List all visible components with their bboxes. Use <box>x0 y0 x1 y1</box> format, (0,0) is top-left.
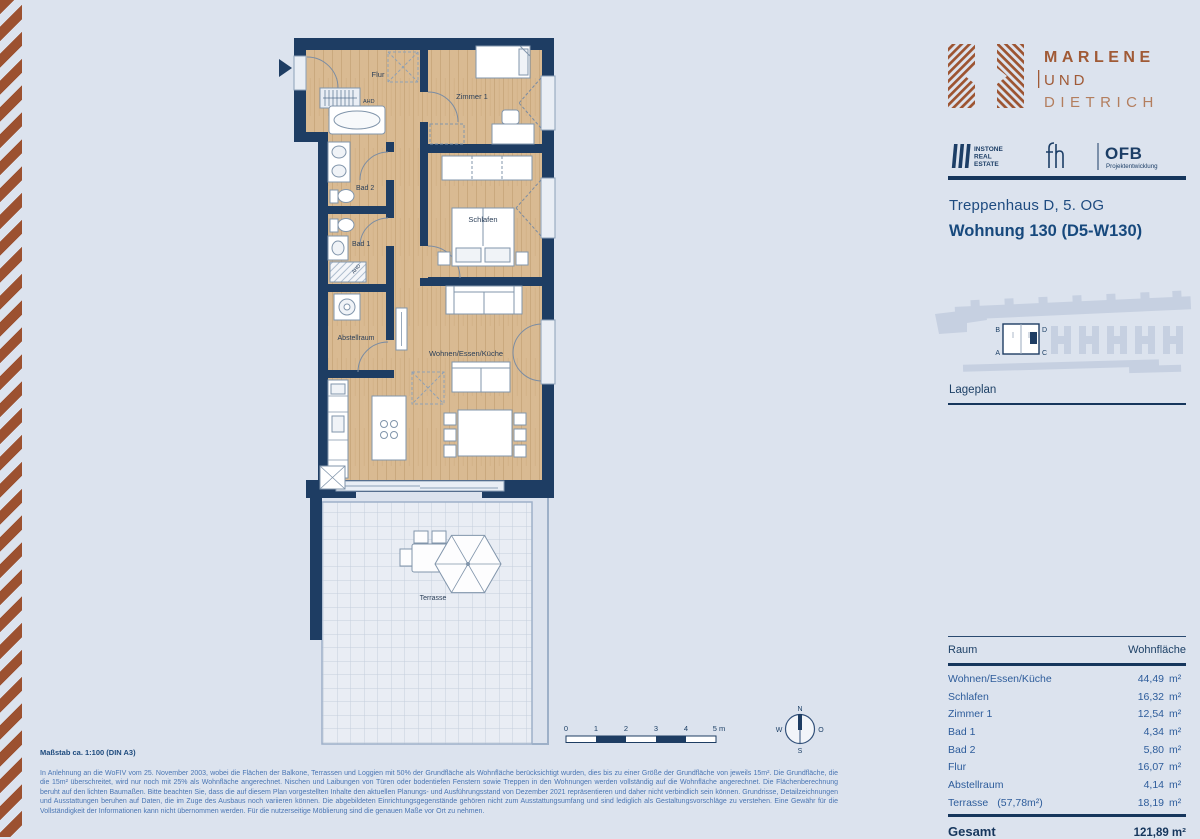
row-area-value: 4,34 <box>1144 726 1164 738</box>
ofb-subtitle: Projektentwicklung <box>1106 163 1158 170</box>
area-table: Raum Wohnfläche Wohnen/Essen/Küche 44,49… <box>948 636 1186 839</box>
row-room-name: Wohnen/Essen/Küche <box>948 673 1052 685</box>
fh-monogram-icon <box>1046 143 1063 168</box>
current-unit-highlight <box>1030 332 1037 344</box>
floor-plan-drawing: Terrasse <box>268 28 570 755</box>
row-area-value: 44,49 <box>1138 673 1164 685</box>
marlene-dietrich-logo: MARLENE UND DIETRICH <box>948 40 1192 114</box>
table-row: Bad 2 5,80 m² <box>948 741 1186 759</box>
site-plan-unit-marker: B D A C <box>995 324 1047 357</box>
column-room: Raum <box>948 644 977 656</box>
terrace-railing <box>532 494 548 744</box>
row-room-name: Zimmer 1 <box>948 708 992 720</box>
construction-stripe-band <box>0 0 22 837</box>
chair <box>514 413 526 425</box>
room-label-schlafen: Schlafen <box>468 215 497 224</box>
row-room-note: (57,78m²) <box>997 797 1043 809</box>
room-label-wohnen: Wohnen/Essen/Küche <box>429 349 503 358</box>
ahd-label: AHD <box>363 99 375 105</box>
table-row: Bad 1 4,34 m² <box>948 723 1186 741</box>
chair <box>502 110 519 124</box>
siteplan-label-b: B <box>995 327 1000 334</box>
staircase-title: Treppenhaus D, 5. OG <box>949 197 1104 214</box>
table-row: Abstellraum 4,14 m² <box>948 776 1186 794</box>
row-area-value: 16,32 <box>1138 691 1164 703</box>
desk <box>492 124 534 144</box>
row-area-value: 4,14 <box>1144 779 1164 791</box>
row-area-value: 18,19 <box>1138 797 1164 809</box>
ofb-logo: OFB Projektentwicklung <box>1105 144 1158 170</box>
instone-logo: INSTONE REAL ESTATE <box>952 144 1004 168</box>
room-label-zimmer1: Zimmer 1 <box>456 92 488 101</box>
table-row: Schlafen 16,32 m² <box>948 688 1186 706</box>
shower <box>330 262 366 282</box>
scale-tick: 5 m <box>713 724 726 733</box>
chair <box>514 429 526 441</box>
scale-tick: 0 <box>564 724 568 733</box>
table-row: Terrasse (57,78m²) 18,19 m² <box>948 794 1186 812</box>
siteplan-label-d: D <box>1042 327 1047 334</box>
logo-mark-left <box>948 44 975 108</box>
chair <box>514 445 526 457</box>
scale-bar: 0 1 2 3 4 5 m <box>564 724 725 743</box>
compass-n: N <box>797 706 802 713</box>
table-row: Flur 16,07 m² <box>948 758 1186 776</box>
entrance-arrow-icon <box>279 59 292 77</box>
toilet <box>330 190 338 203</box>
scale-note: Maßstab ca. 1:100 (DIN A3) <box>40 748 136 757</box>
row-area-unit: m² <box>1164 797 1186 809</box>
wordmark-line3: DIETRICH <box>1044 94 1159 111</box>
row-room-name: Abstellraum <box>948 779 1003 791</box>
instone-line3: ESTATE <box>974 161 999 168</box>
total-label: Gesamt <box>948 824 996 839</box>
siteplan-rule <box>948 403 1186 405</box>
site-plan-buildings <box>935 290 1191 378</box>
compass-w: W <box>776 727 783 734</box>
table-header: Raum Wohnfläche <box>948 639 1186 663</box>
header-rule <box>948 176 1186 180</box>
scale-tick: 3 <box>654 724 658 733</box>
compass-icon: N W O S <box>776 706 825 755</box>
row-area-unit: m² <box>1164 691 1186 703</box>
siteplan-caption: Lageplan <box>949 384 996 396</box>
chair <box>444 413 456 425</box>
instone-line2: REAL <box>974 154 992 161</box>
room-label-flur: Flur <box>372 70 385 79</box>
row-area-value: 5,80 <box>1144 744 1164 756</box>
row-room-name: Bad 2 <box>948 744 975 756</box>
compass-o: O <box>818 727 824 734</box>
nightstand <box>438 252 450 265</box>
scale-tick: 4 <box>684 724 688 733</box>
row-area-unit: m² <box>1164 744 1186 756</box>
siteplan-label-c: C <box>1042 350 1047 357</box>
toilet <box>330 219 338 232</box>
room-label-bad2: Bad 2 <box>356 185 374 192</box>
site-plan: B D A C <box>933 280 1197 382</box>
nightstand <box>516 252 528 265</box>
logo-mark-right <box>997 44 1024 108</box>
terrace: Terrasse <box>306 492 554 744</box>
wordmark-line1: MARLENE <box>1044 49 1155 66</box>
row-room-name: Flur <box>948 761 966 773</box>
scale-tick: 2 <box>624 724 628 733</box>
ofb-wordmark: OFB <box>1105 144 1142 163</box>
legal-disclaimer: In Anlehnung an die WoFIV vom 25. Novemb… <box>40 769 838 816</box>
dining-table <box>458 410 512 456</box>
room-label-terrasse: Terrasse <box>420 595 447 602</box>
table-row: Zimmer 1 12,54 m² <box>948 705 1186 723</box>
kitchen-island <box>372 396 406 460</box>
partner-logos: INSTONE REAL ESTATE OFB Projektentwicklu… <box>948 138 1192 176</box>
compass-s: S <box>798 748 803 755</box>
row-area-value: 12,54 <box>1138 708 1164 720</box>
chair <box>444 445 456 457</box>
wardrobe-row <box>442 156 532 180</box>
row-area-unit: m² <box>1164 673 1186 685</box>
row-area-unit: m² <box>1164 708 1186 720</box>
column-area: Wohnfläche <box>1128 644 1186 656</box>
wordmark-line2: UND <box>1044 72 1089 89</box>
room-label-bad1: Bad 1 <box>352 241 370 248</box>
row-area-unit: m² <box>1164 761 1186 773</box>
entrance-door <box>294 56 306 90</box>
area-table-body: Wohnen/Essen/Küche 44,49 m² Schlafen 16,… <box>948 666 1186 814</box>
row-area-value: 16,07 <box>1138 761 1164 773</box>
row-room-name: Bad 1 <box>948 726 975 738</box>
unit-title: Wohnung 130 (D5-W130) <box>949 222 1142 241</box>
scale-tick: 1 <box>594 724 598 733</box>
siteplan-label-a: A <box>995 350 1000 357</box>
row-room-name: Terrasse <box>948 797 988 809</box>
row-area-unit: m² <box>1164 726 1186 738</box>
row-room-name: Schlafen <box>948 691 989 703</box>
table-total-row: Gesamt 121,89 m² <box>948 817 1186 839</box>
table-row: Wohnen/Essen/Küche 44,49 m² <box>948 670 1186 688</box>
table-rule-top <box>948 636 1186 637</box>
room-label-abstellraum: Abstellraum <box>338 335 375 342</box>
scale-and-compass: 0 1 2 3 4 5 m N W O S <box>560 695 830 765</box>
row-area-unit: m² <box>1164 779 1186 791</box>
chair <box>444 429 456 441</box>
instone-line1: INSTONE <box>974 146 1003 153</box>
